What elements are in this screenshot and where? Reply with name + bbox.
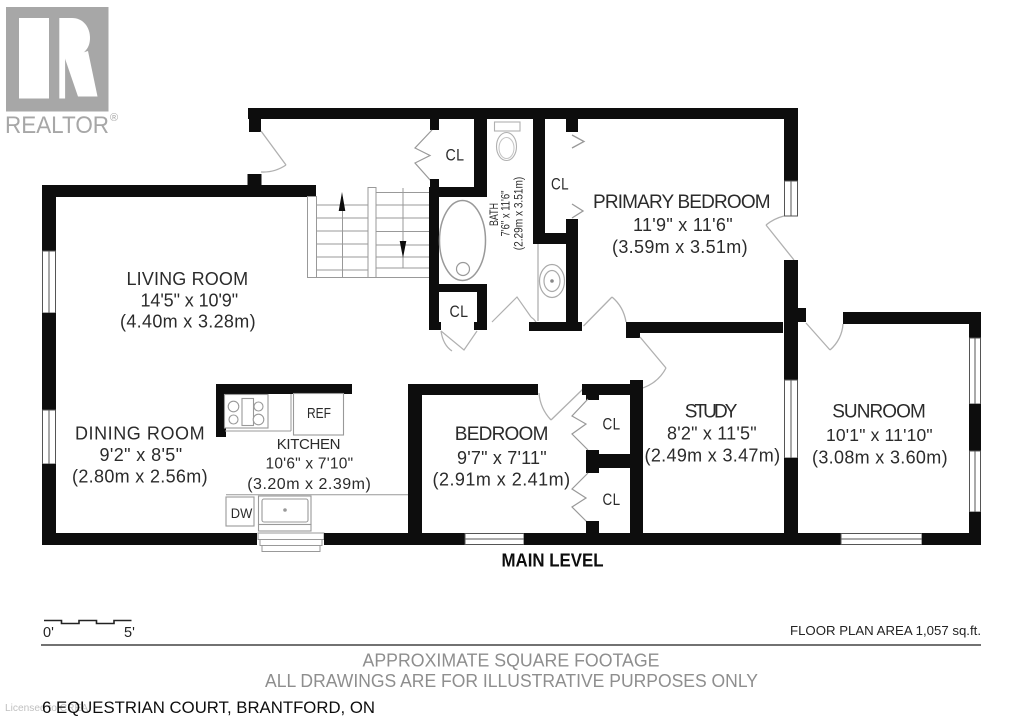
svg-text:(2.29m x 3.51m): (2.29m x 3.51m): [514, 177, 526, 251]
svg-text:REALTOR: REALTOR: [5, 112, 109, 139]
svg-text:KITCHEN: KITCHEN: [277, 436, 341, 453]
svg-text:FLOOR PLAN AREA 1,057 sq.ft.: FLOOR PLAN AREA 1,057 sq.ft.: [790, 623, 981, 638]
svg-text:LIVING ROOM: LIVING ROOM: [127, 269, 249, 289]
svg-text:(4.40m x 3.28m): (4.40m x 3.28m): [120, 312, 256, 332]
svg-text:SUNROOM: SUNROOM: [832, 402, 926, 423]
svg-text:9'7" x 7'11": 9'7" x 7'11": [457, 448, 547, 468]
svg-text:(2.91m x 2.41m): (2.91m x 2.41m): [433, 470, 571, 490]
svg-text:(2.80m x 2.56m): (2.80m x 2.56m): [72, 467, 208, 487]
svg-text:APPROXIMATE SQUARE FOOTAGE: APPROXIMATE SQUARE FOOTAGE: [363, 651, 660, 671]
svg-text:6 EQUESTRIAN COURT, BRANTFORD,: 6 EQUESTRIAN COURT, BRANTFORD, ON: [42, 699, 375, 717]
svg-text:5': 5': [124, 625, 135, 641]
svg-text:11'9" x 11'6": 11'9" x 11'6": [633, 215, 733, 235]
svg-text:(3.20m x 2.39m): (3.20m x 2.39m): [247, 476, 371, 493]
svg-text:9'2" x 8'5": 9'2" x 8'5": [100, 445, 183, 465]
svg-text:CL: CL: [551, 175, 569, 194]
svg-text:(2.49m x 3.47m): (2.49m x 3.47m): [645, 446, 781, 466]
svg-text:CL: CL: [603, 490, 621, 509]
svg-text:STUDY: STUDY: [685, 402, 738, 423]
svg-text:0': 0': [43, 625, 54, 641]
svg-text:REF: REF: [307, 406, 331, 422]
svg-text:DINING ROOM: DINING ROOM: [75, 424, 205, 444]
svg-text:®: ®: [110, 112, 118, 124]
svg-text:CL: CL: [603, 415, 621, 434]
svg-text:8'2" x 11'5": 8'2" x 11'5": [667, 424, 757, 444]
svg-text:BEDROOM: BEDROOM: [455, 424, 549, 445]
svg-text:7'6" x 11'6": 7'6" x 11'6": [499, 191, 513, 237]
svg-text:10'1" x 11'10": 10'1" x 11'10": [826, 425, 933, 445]
svg-text:(3.59m x 3.51m): (3.59m x 3.51m): [612, 237, 748, 257]
svg-text:CL: CL: [450, 302, 469, 321]
svg-text:CL: CL: [446, 146, 465, 165]
svg-text:ALL DRAWINGS ARE FOR ILLUSTRAT: ALL DRAWINGS ARE FOR ILLUSTRATIVE PURPOS…: [265, 671, 758, 691]
svg-text:10'6" x 7'10": 10'6" x 7'10": [266, 456, 354, 473]
svg-text:14'5" x 10'9": 14'5" x 10'9": [141, 291, 239, 311]
svg-text:PRIMARY BEDROOM: PRIMARY BEDROOM: [593, 192, 771, 213]
svg-text:(3.08m x 3.60m): (3.08m x 3.60m): [812, 448, 948, 468]
svg-text:MAIN LEVEL: MAIN LEVEL: [502, 550, 604, 571]
svg-text:DW: DW: [231, 505, 253, 521]
